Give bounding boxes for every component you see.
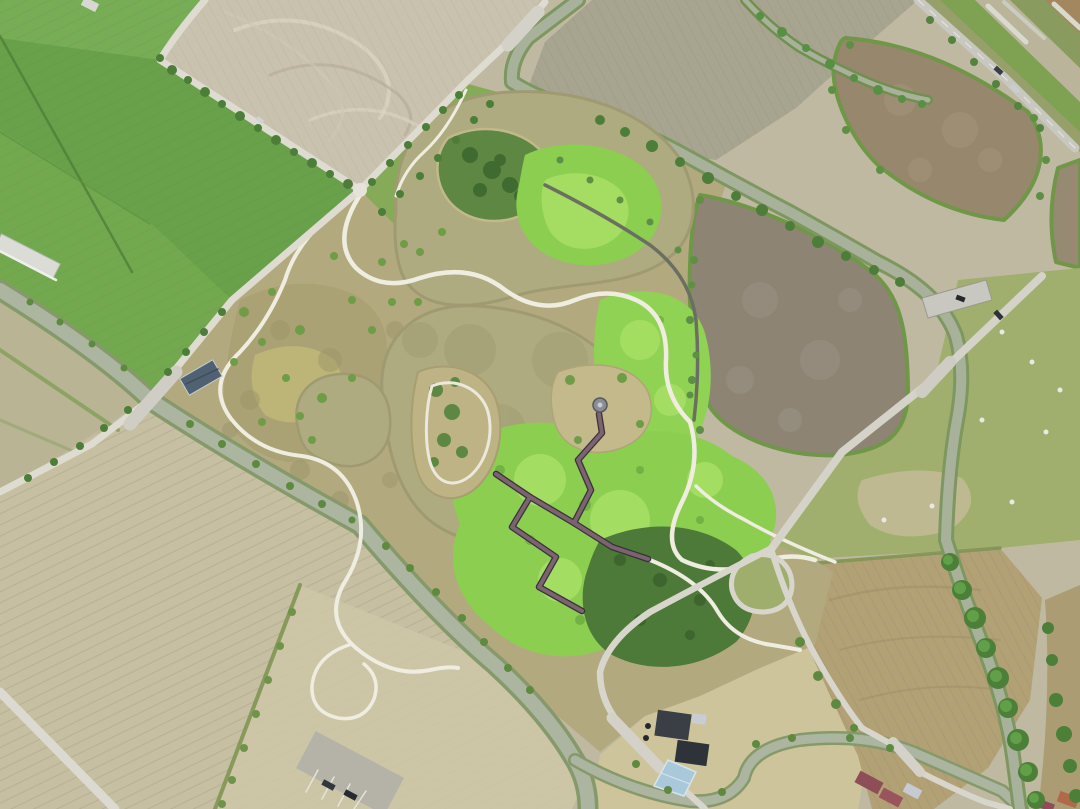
trees-canal-west-dot <box>89 341 96 348</box>
trees-pond-rims-dot <box>690 256 698 264</box>
trees-main-road-dot <box>992 80 1000 88</box>
shrubs-park-west-dot <box>258 418 266 426</box>
trees-road-west-dot <box>24 474 32 482</box>
trees-big-southeast-light-dot <box>967 610 979 622</box>
trees-road-northwest-dot <box>271 135 281 145</box>
trees-canal-north-row2-dot <box>873 85 883 95</box>
lotus-bright-patches-dot <box>620 320 660 360</box>
trees-road-northwest-dot <box>184 76 192 84</box>
lotus-specks-dot <box>636 466 644 474</box>
trees-pond-rims-dot <box>1042 156 1050 164</box>
trees-canal-south-dot <box>846 734 854 742</box>
trees-canal-west-dot <box>480 638 488 646</box>
trees-canal-north-row1-dot <box>841 251 851 261</box>
trees-right-edge-bottom-dot <box>1049 693 1063 707</box>
island-north-shrubs-dot <box>494 154 506 166</box>
trees-road-southeast-dot <box>831 699 841 709</box>
trees-right-edge-bottom-dot <box>1056 726 1072 742</box>
trees-main-road-dot <box>970 58 978 66</box>
apiary-boxes-dot <box>1044 430 1049 435</box>
trees-park-lawn-dot <box>470 116 478 124</box>
trees-canal-west-dot <box>458 614 466 622</box>
trees-big-southeast-light-dot <box>990 670 1002 682</box>
trees-canal-north-row1-dot <box>646 140 658 152</box>
shrubs-lakeshore-dot <box>557 157 564 164</box>
shrubs-park-west-dot <box>317 393 327 403</box>
pond-brown-mottle-dot <box>942 112 978 148</box>
pond-shade-dot <box>402 322 438 358</box>
trees-pond-rims-dot <box>828 86 836 94</box>
trees-canal-south-dot <box>718 788 726 796</box>
trees-canal-north-row1-dot <box>595 115 605 125</box>
shrubs-park-west-dot <box>295 325 305 335</box>
trees-road-west-dot <box>164 368 172 376</box>
park-mottle-dot <box>240 390 260 410</box>
trees-road-northwest-dot <box>343 179 353 189</box>
trees-canal-north-row1-dot <box>895 277 905 287</box>
trees-road-northwest-dot <box>218 100 226 108</box>
trees-canal-west-dot <box>432 588 440 596</box>
trees-road-southeast-dot <box>795 637 805 647</box>
trees-pond-rims-dot <box>1036 192 1044 200</box>
trees-road-northbridge-dot <box>386 159 394 167</box>
trees-road-northwest-dot <box>200 87 210 97</box>
shrubs-park-west-dot <box>348 374 356 382</box>
trees-canal-west-dot <box>406 564 414 572</box>
trees-canal-north-row2-dot <box>802 44 810 52</box>
pond-central-west-lobe <box>296 374 390 466</box>
park-mottle-dot <box>382 472 398 488</box>
apiary-boxes-dot <box>1030 360 1035 365</box>
pond-east-small <box>1051 160 1080 268</box>
shrubs-park-west-dot <box>414 298 422 306</box>
island-north-shrubs-dot <box>502 177 518 193</box>
trees-road-northbridge-dot <box>439 106 447 114</box>
trees-road-northwest-dot <box>290 148 298 156</box>
trees-canal-west-dot <box>27 299 34 306</box>
trees-canal-west-dot <box>121 365 128 372</box>
park-mottle-dot <box>318 348 342 372</box>
shrubs-park-west-dot <box>230 358 238 366</box>
shrubs-park-west-dot <box>416 248 424 256</box>
trees-big-southeast-light-dot <box>1010 732 1022 744</box>
trees-canal-south-dot <box>788 734 796 742</box>
trees-main-road-dot <box>926 16 934 24</box>
trees-pond-rims-dot <box>688 376 696 384</box>
trees-canal-north-row2-dot <box>756 12 764 20</box>
shrubs-park-west-dot <box>438 228 446 236</box>
trees-park-lawn-dot <box>452 136 460 144</box>
trees-canal-north-row1-dot <box>756 204 768 216</box>
trees-road-northbridge-dot <box>404 141 412 149</box>
apiary-boxes-dot <box>882 518 887 523</box>
trees-road-west-dot <box>50 458 58 466</box>
shrubs-lakeshore-dot <box>689 282 696 289</box>
visitor-building-1 <box>654 710 691 740</box>
pond-brown-mottle-dot <box>978 148 1002 172</box>
trees-road-northwest-dot <box>307 158 317 168</box>
shrubs-park-west-dot <box>400 240 408 248</box>
trees-pond-rims-dot <box>696 196 704 204</box>
visitor-building-2 <box>675 740 710 766</box>
shrubs-lakeshore-dot <box>693 352 700 359</box>
trees-big-southeast-light-dot <box>1000 700 1012 712</box>
visitor-cars-dot <box>645 723 651 729</box>
trees-park-lawn-dot <box>434 154 442 162</box>
thicket-texture-dot <box>685 630 695 640</box>
shrubs-lakeshore-dot <box>617 197 624 204</box>
mound-shrubs-dot <box>565 375 575 385</box>
thicket-texture-dot <box>653 573 667 587</box>
trees-canal-north-row2-dot <box>918 100 926 108</box>
trees-road-west-dot <box>76 442 84 450</box>
trees-road-west-dot <box>100 424 108 432</box>
trees-hedge-bottomleft-dot <box>228 776 236 784</box>
scene-layers <box>0 0 1080 809</box>
trees-park-lawn-dot <box>416 172 424 180</box>
trees-pond-rims-dot <box>686 316 694 324</box>
trees-hedge-bottomleft-dot <box>218 800 226 808</box>
lotus-bright-patches-dot <box>514 454 566 506</box>
trees-right-edge-bottom-dot <box>1042 622 1054 634</box>
trees-canal-west-dot <box>252 460 260 468</box>
trees-park-lawn-dot <box>378 208 386 216</box>
trees-park-lawn-dot <box>396 190 404 198</box>
trees-hedge-bottomleft-dot <box>252 710 260 718</box>
trees-hedge-bottomleft-dot <box>276 642 284 650</box>
trees-road-southeast-dot <box>850 724 858 732</box>
trees-canal-west-dot <box>349 517 356 524</box>
trees-canal-north-row1-dot <box>731 191 741 201</box>
trees-road-northwest-dot <box>235 111 245 121</box>
pond-grey-mottle-dot <box>800 340 840 380</box>
trees-road-northwest-dot <box>254 124 262 132</box>
visitor-cars-dot <box>643 735 649 741</box>
mound-shrubs-dot <box>574 436 582 444</box>
trees-road-southeast-dot <box>813 671 823 681</box>
shrubs-park-west-dot <box>308 436 316 444</box>
trees-road-west-dot <box>124 406 132 414</box>
shrubs-lakeshore-dot <box>587 177 594 184</box>
pond-grey-mottle-dot <box>742 282 778 318</box>
road-junction-plaza <box>353 183 367 197</box>
trees-hedge-bottomleft-dot <box>264 676 272 684</box>
island-north-shrubs-dot <box>462 147 478 163</box>
trees-canal-north-row2-dot <box>850 74 858 82</box>
trees-canal-north-row2-dot <box>898 95 906 103</box>
pond-grey-mottle-dot <box>726 366 754 394</box>
lotus-specks-dot <box>575 615 585 625</box>
shrubs-park-west-dot <box>239 307 249 317</box>
lotus-specks-dot <box>696 516 704 524</box>
trees-canal-south-dot <box>632 760 640 768</box>
trees-canal-west-dot <box>218 440 226 448</box>
trees-right-edge-bottom-dot <box>1063 759 1077 773</box>
shrubs-park-west-dot <box>378 258 386 266</box>
trees-canal-west-dot <box>526 686 534 694</box>
trees-road-northwest-dot <box>167 65 177 75</box>
apiary-boxes-dot <box>930 504 935 509</box>
trees-canal-north-row1-dot <box>702 172 714 184</box>
apiary-boxes-dot <box>1000 330 1005 335</box>
trees-pond-rims-dot <box>696 426 704 434</box>
trees-park-lawn-dot <box>486 100 494 108</box>
trees-canal-north-row2-dot <box>825 59 835 69</box>
visitor-building-white <box>691 713 706 725</box>
trees-road-west-dot <box>218 308 226 316</box>
park-mottle-dot <box>270 320 290 340</box>
trees-road-northwest-dot <box>156 54 164 62</box>
trees-hedge-bottomleft-dot <box>240 744 248 752</box>
trees-canal-west-dot <box>57 319 64 326</box>
thicket-texture-dot <box>614 554 626 566</box>
island-central-shrubs-dot <box>456 446 468 458</box>
apiary-boxes-dot <box>980 418 985 423</box>
trees-pond-rims-dot <box>842 126 850 134</box>
trees-main-road-dot <box>1014 102 1022 110</box>
shrubs-park-west-dot <box>368 326 376 334</box>
pavilion-roof-top <box>598 403 603 408</box>
trees-canal-west-dot <box>318 500 326 508</box>
trees-main-road-dot <box>1036 124 1044 132</box>
trees-pond-rims-dot <box>846 41 854 49</box>
island-north-shrubs-dot <box>473 183 487 197</box>
trees-main-road-dot <box>948 36 956 44</box>
trees-canal-north-row2-dot <box>777 27 787 37</box>
trees-canal-west-dot <box>186 420 194 428</box>
shrubs-park-west-dot <box>282 374 290 382</box>
shrubs-park-west-dot <box>330 252 338 260</box>
aerial-photo: Aerial drone view of a wetland park with… <box>0 0 1080 809</box>
trees-road-northwest-dot <box>326 170 334 178</box>
trees-pond-rims-dot <box>876 166 884 174</box>
trees-hedge-bottomleft-dot <box>288 608 296 616</box>
trees-canal-west-dot <box>382 542 390 550</box>
trees-canal-south-dot <box>752 740 760 748</box>
mound-shrubs-dot <box>617 373 627 383</box>
pond-brown-mottle-dot <box>908 158 932 182</box>
island-central-shrubs-dot <box>437 433 451 447</box>
trees-canal-north-row1-dot <box>812 236 824 248</box>
trees-canal-north-row1-dot <box>620 127 630 137</box>
trees-big-southeast-light-dot <box>954 582 966 594</box>
trees-canal-south-dot <box>886 744 894 752</box>
shrubs-park-west-dot <box>296 412 304 420</box>
trees-canal-west-dot <box>504 664 512 672</box>
trees-big-southeast-light-dot <box>1029 793 1039 803</box>
trees-big-southeast-light-dot <box>1020 764 1032 776</box>
mound-shrubs-dot <box>636 420 644 428</box>
shrubs-park-west-dot <box>268 288 276 296</box>
pond-grey-mottle-dot <box>778 408 802 432</box>
island-central-shrubs-dot <box>444 404 460 420</box>
shrubs-lakeshore-dot <box>687 392 694 399</box>
trees-big-southeast-light-dot <box>943 555 953 565</box>
trees-canal-north-row1-dot <box>675 157 685 167</box>
trees-road-west-dot <box>182 348 190 356</box>
shrubs-lakeshore-dot <box>647 219 654 226</box>
trees-canal-south-dot <box>664 786 672 794</box>
pond-grey-mottle-dot <box>838 288 862 312</box>
aerial-photo-svg <box>0 0 1080 809</box>
shrubs-lakeshore-dot <box>675 247 682 254</box>
trees-road-northbridge-dot <box>368 178 376 186</box>
trees-canal-north-row1-dot <box>785 221 795 231</box>
apiary-boxes-dot <box>1010 500 1015 505</box>
shrubs-park-west-dot <box>348 296 356 304</box>
trees-right-edge-bottom-dot <box>1046 654 1058 666</box>
apiary-boxes-dot <box>1058 388 1063 393</box>
trees-pond-rims-dot <box>1030 114 1038 122</box>
trees-big-southeast-light-dot <box>978 640 990 652</box>
shrubs-park-west-dot <box>388 298 396 306</box>
trees-canal-west-dot <box>286 482 294 490</box>
trees-road-northbridge-dot <box>455 91 463 99</box>
trees-canal-north-row1-dot <box>869 265 879 275</box>
trees-road-northbridge-dot <box>422 123 430 131</box>
shrubs-park-west-dot <box>258 338 266 346</box>
trees-road-west-dot <box>200 328 208 336</box>
